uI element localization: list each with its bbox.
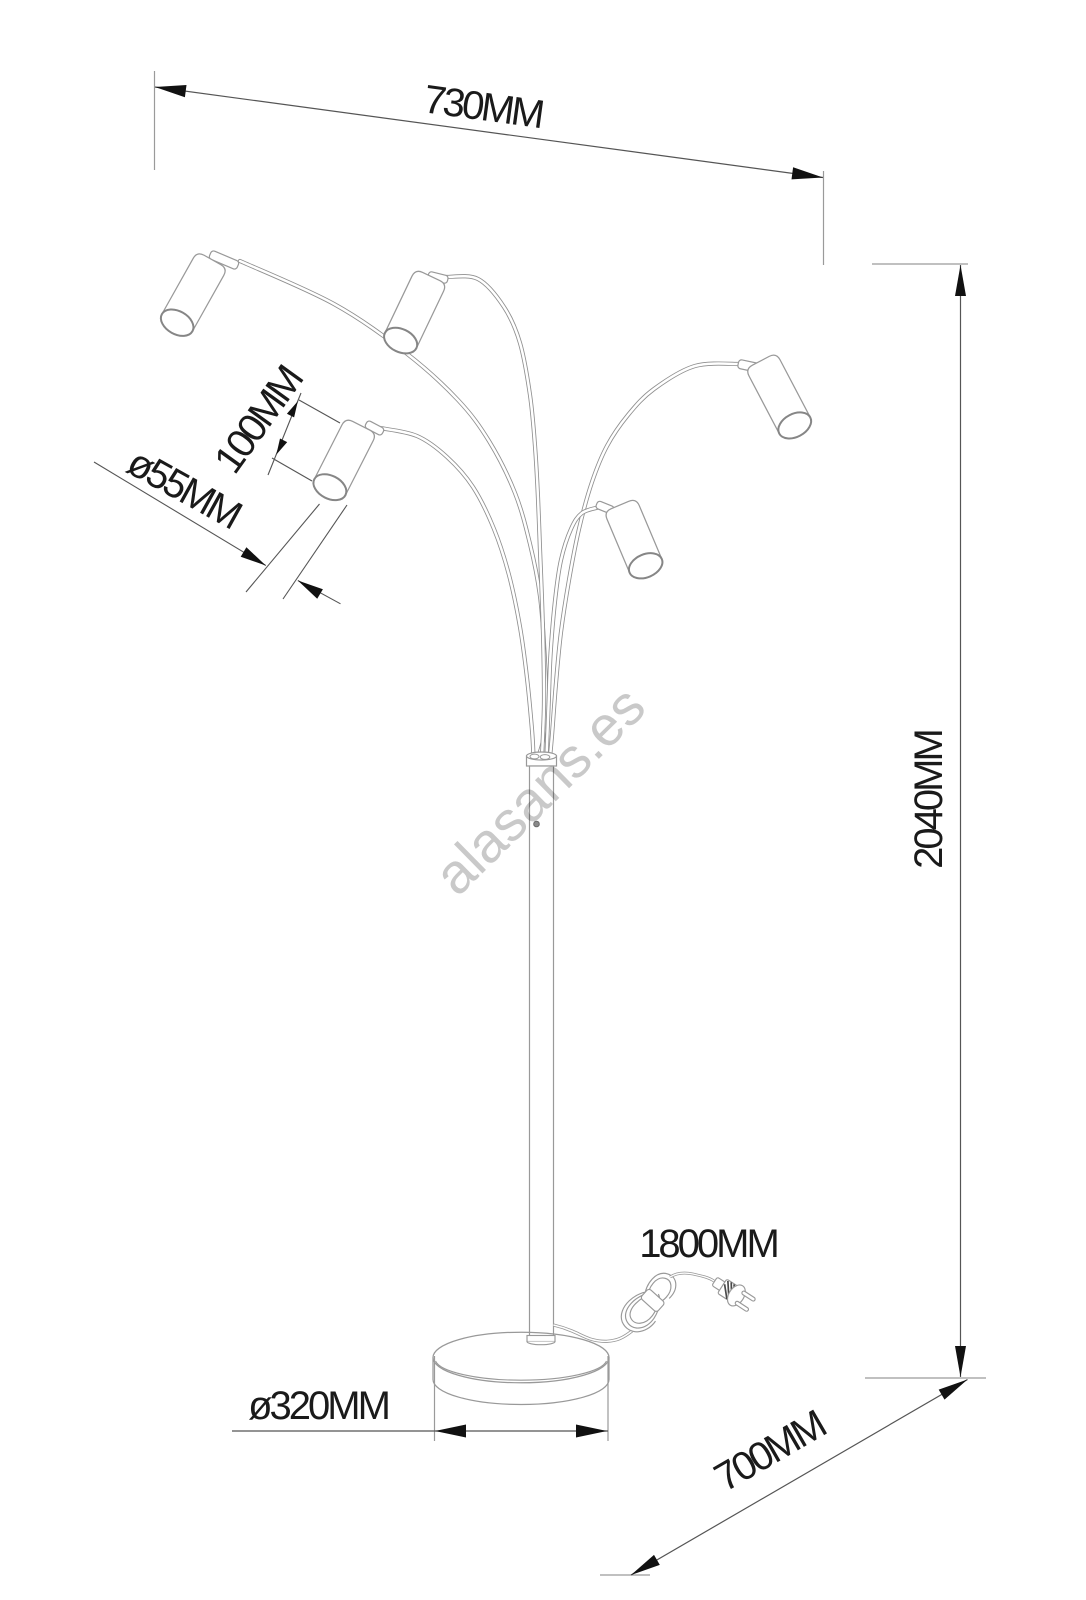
svg-text:100MM: 100MM	[206, 359, 311, 481]
svg-text:2040MM: 2040MM	[907, 731, 951, 869]
svg-text:700MM: 700MM	[707, 1403, 832, 1501]
svg-text:ø320MM: ø320MM	[248, 1384, 388, 1428]
svg-text:730MM: 730MM	[421, 77, 545, 137]
svg-text:1800MM: 1800MM	[639, 1222, 777, 1266]
